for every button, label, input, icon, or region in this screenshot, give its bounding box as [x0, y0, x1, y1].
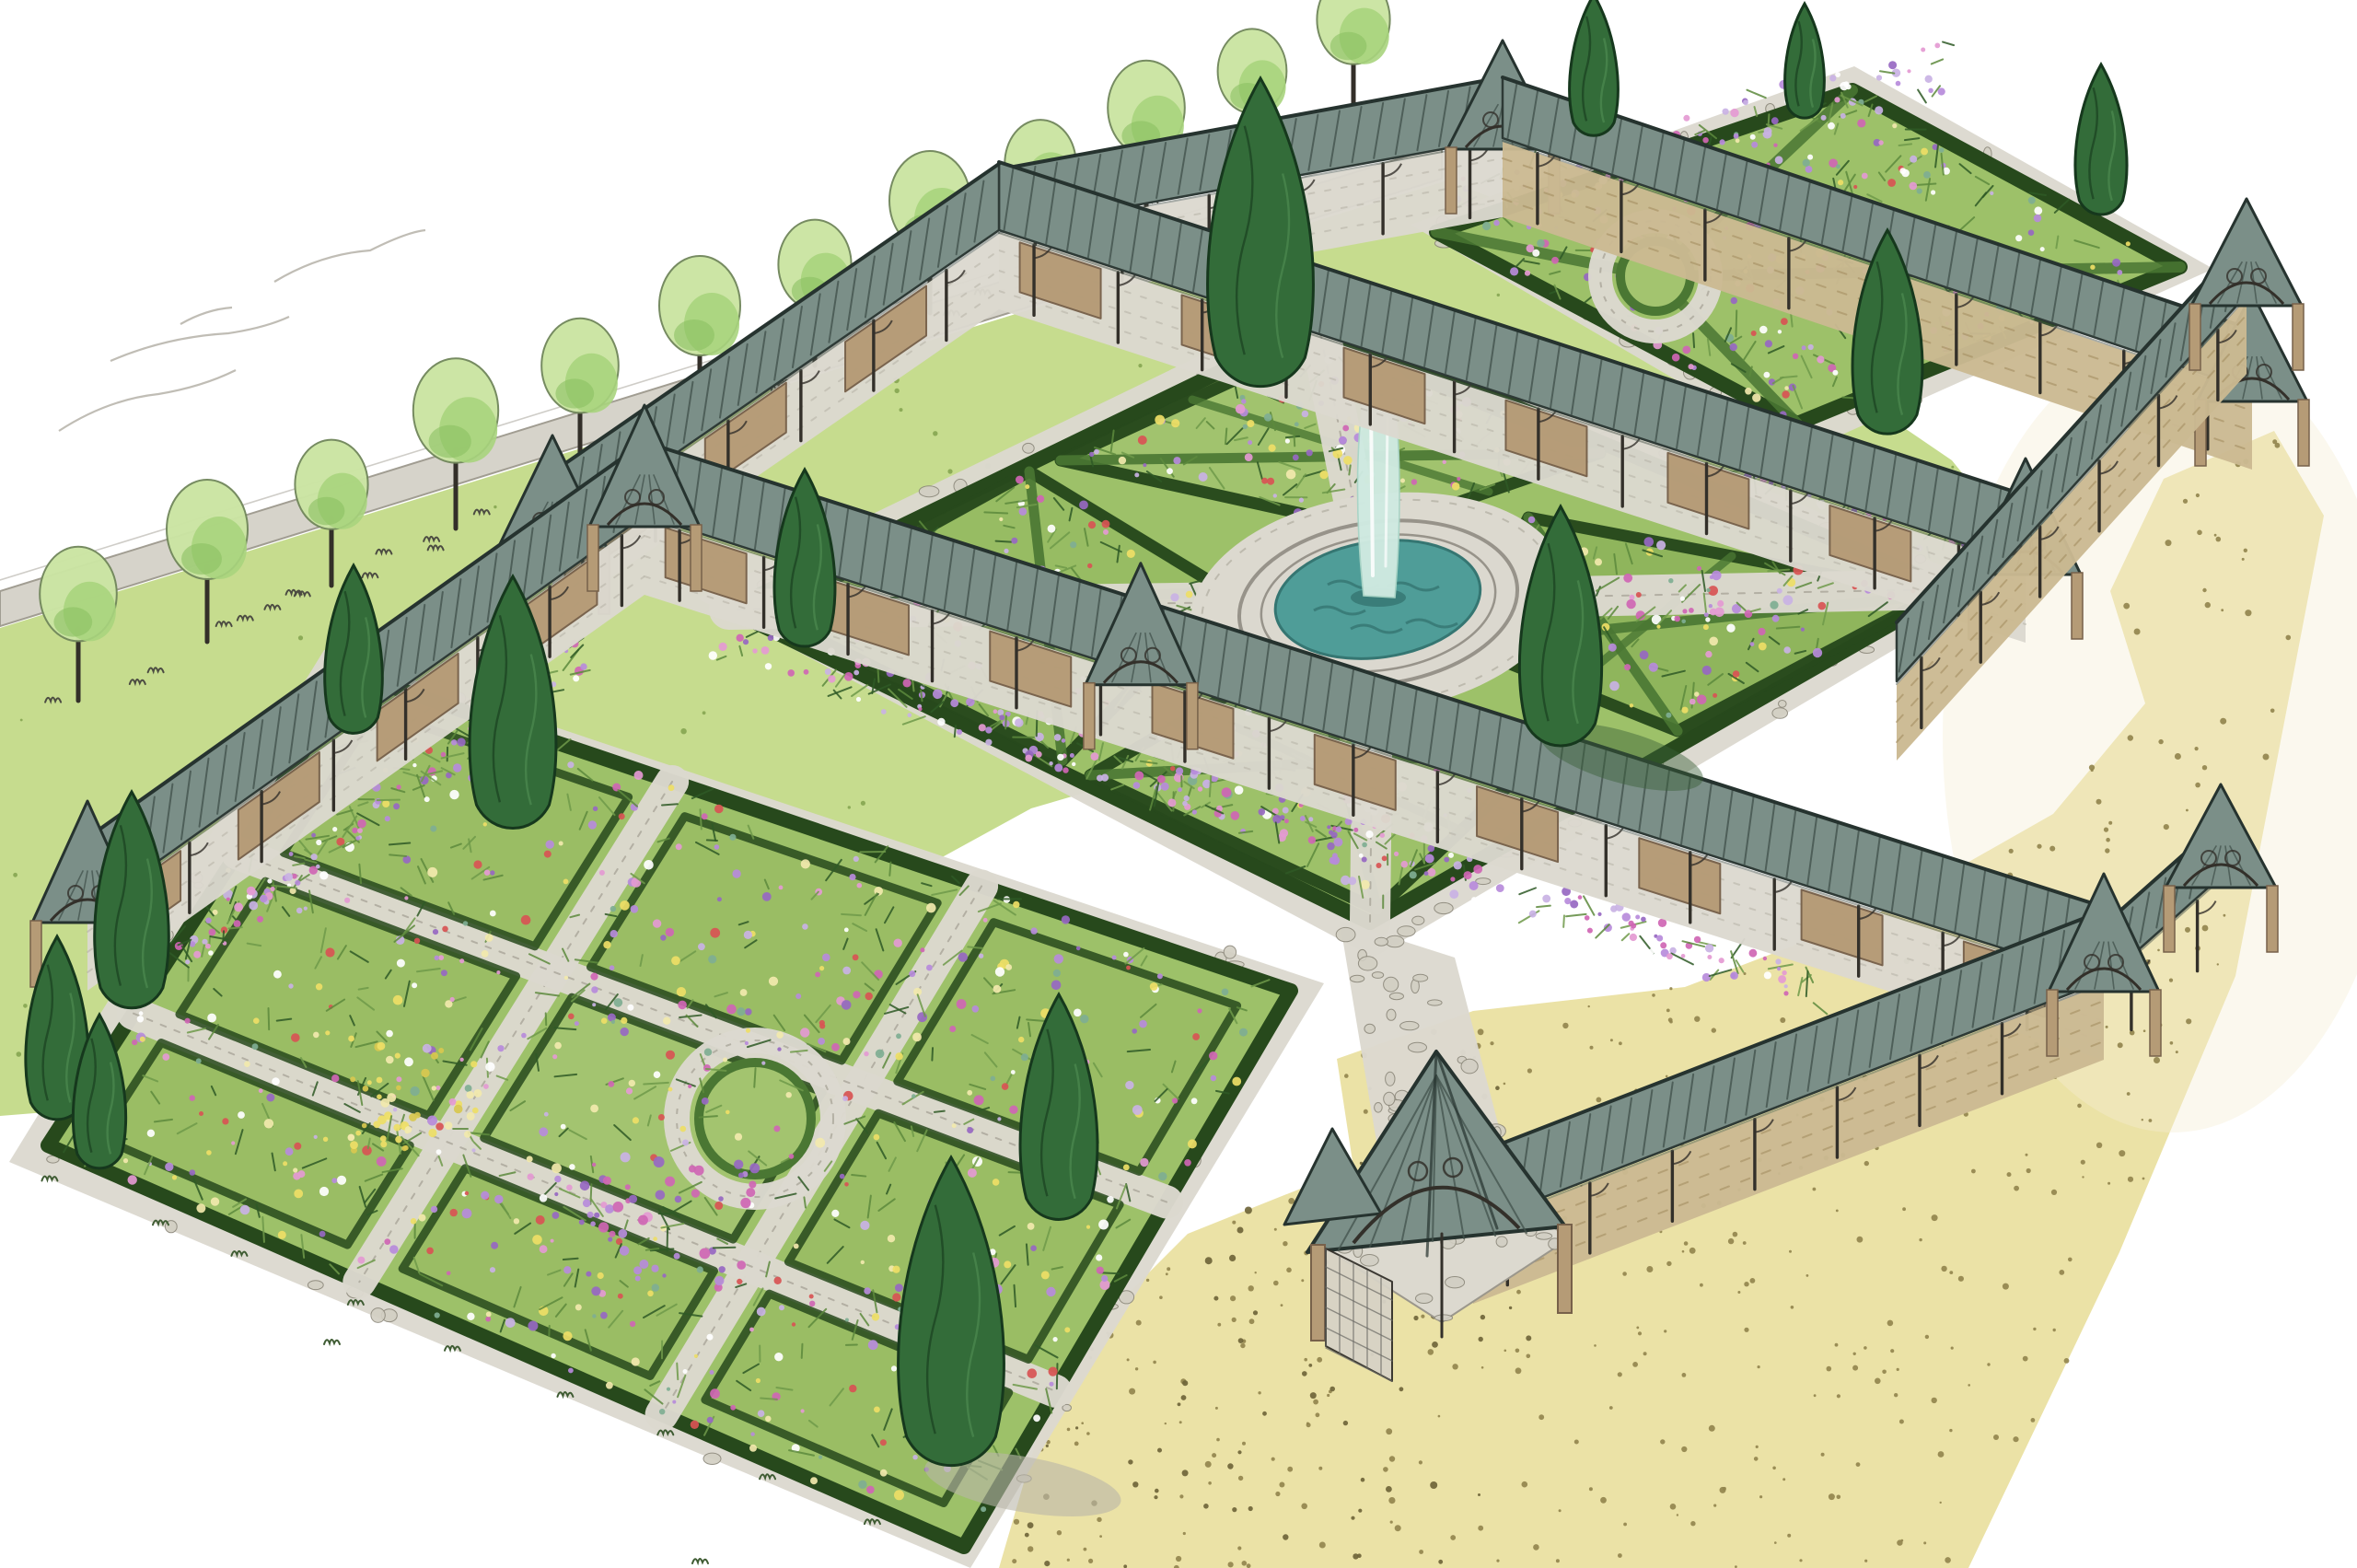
garden-illustration-stage — [0, 0, 2357, 1568]
garden-rendering — [0, 0, 2357, 1568]
